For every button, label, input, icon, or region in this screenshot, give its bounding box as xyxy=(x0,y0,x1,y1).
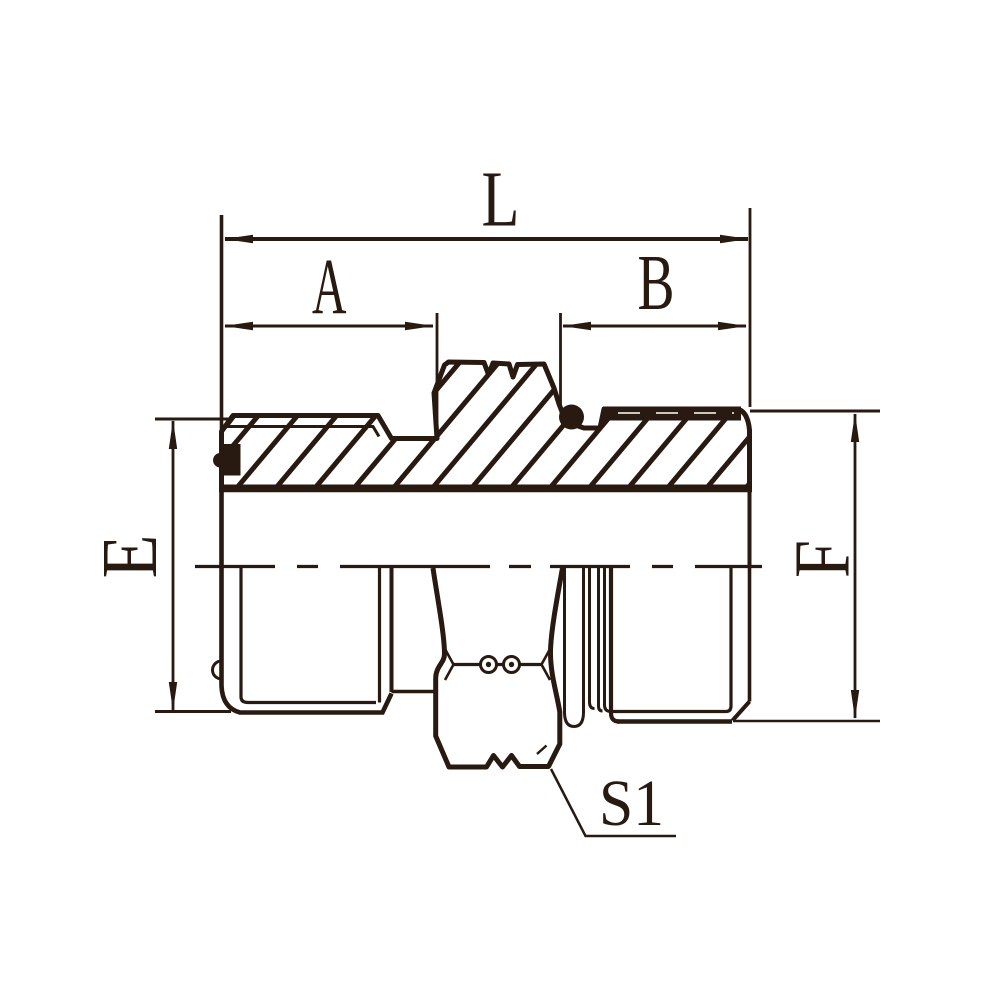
svg-text:B: B xyxy=(638,240,675,327)
svg-text:L: L xyxy=(482,157,520,244)
svg-text:S1: S1 xyxy=(599,767,664,840)
svg-text:E: E xyxy=(87,535,174,579)
svg-text:A: A xyxy=(312,244,347,331)
svg-text:F: F xyxy=(780,540,867,578)
